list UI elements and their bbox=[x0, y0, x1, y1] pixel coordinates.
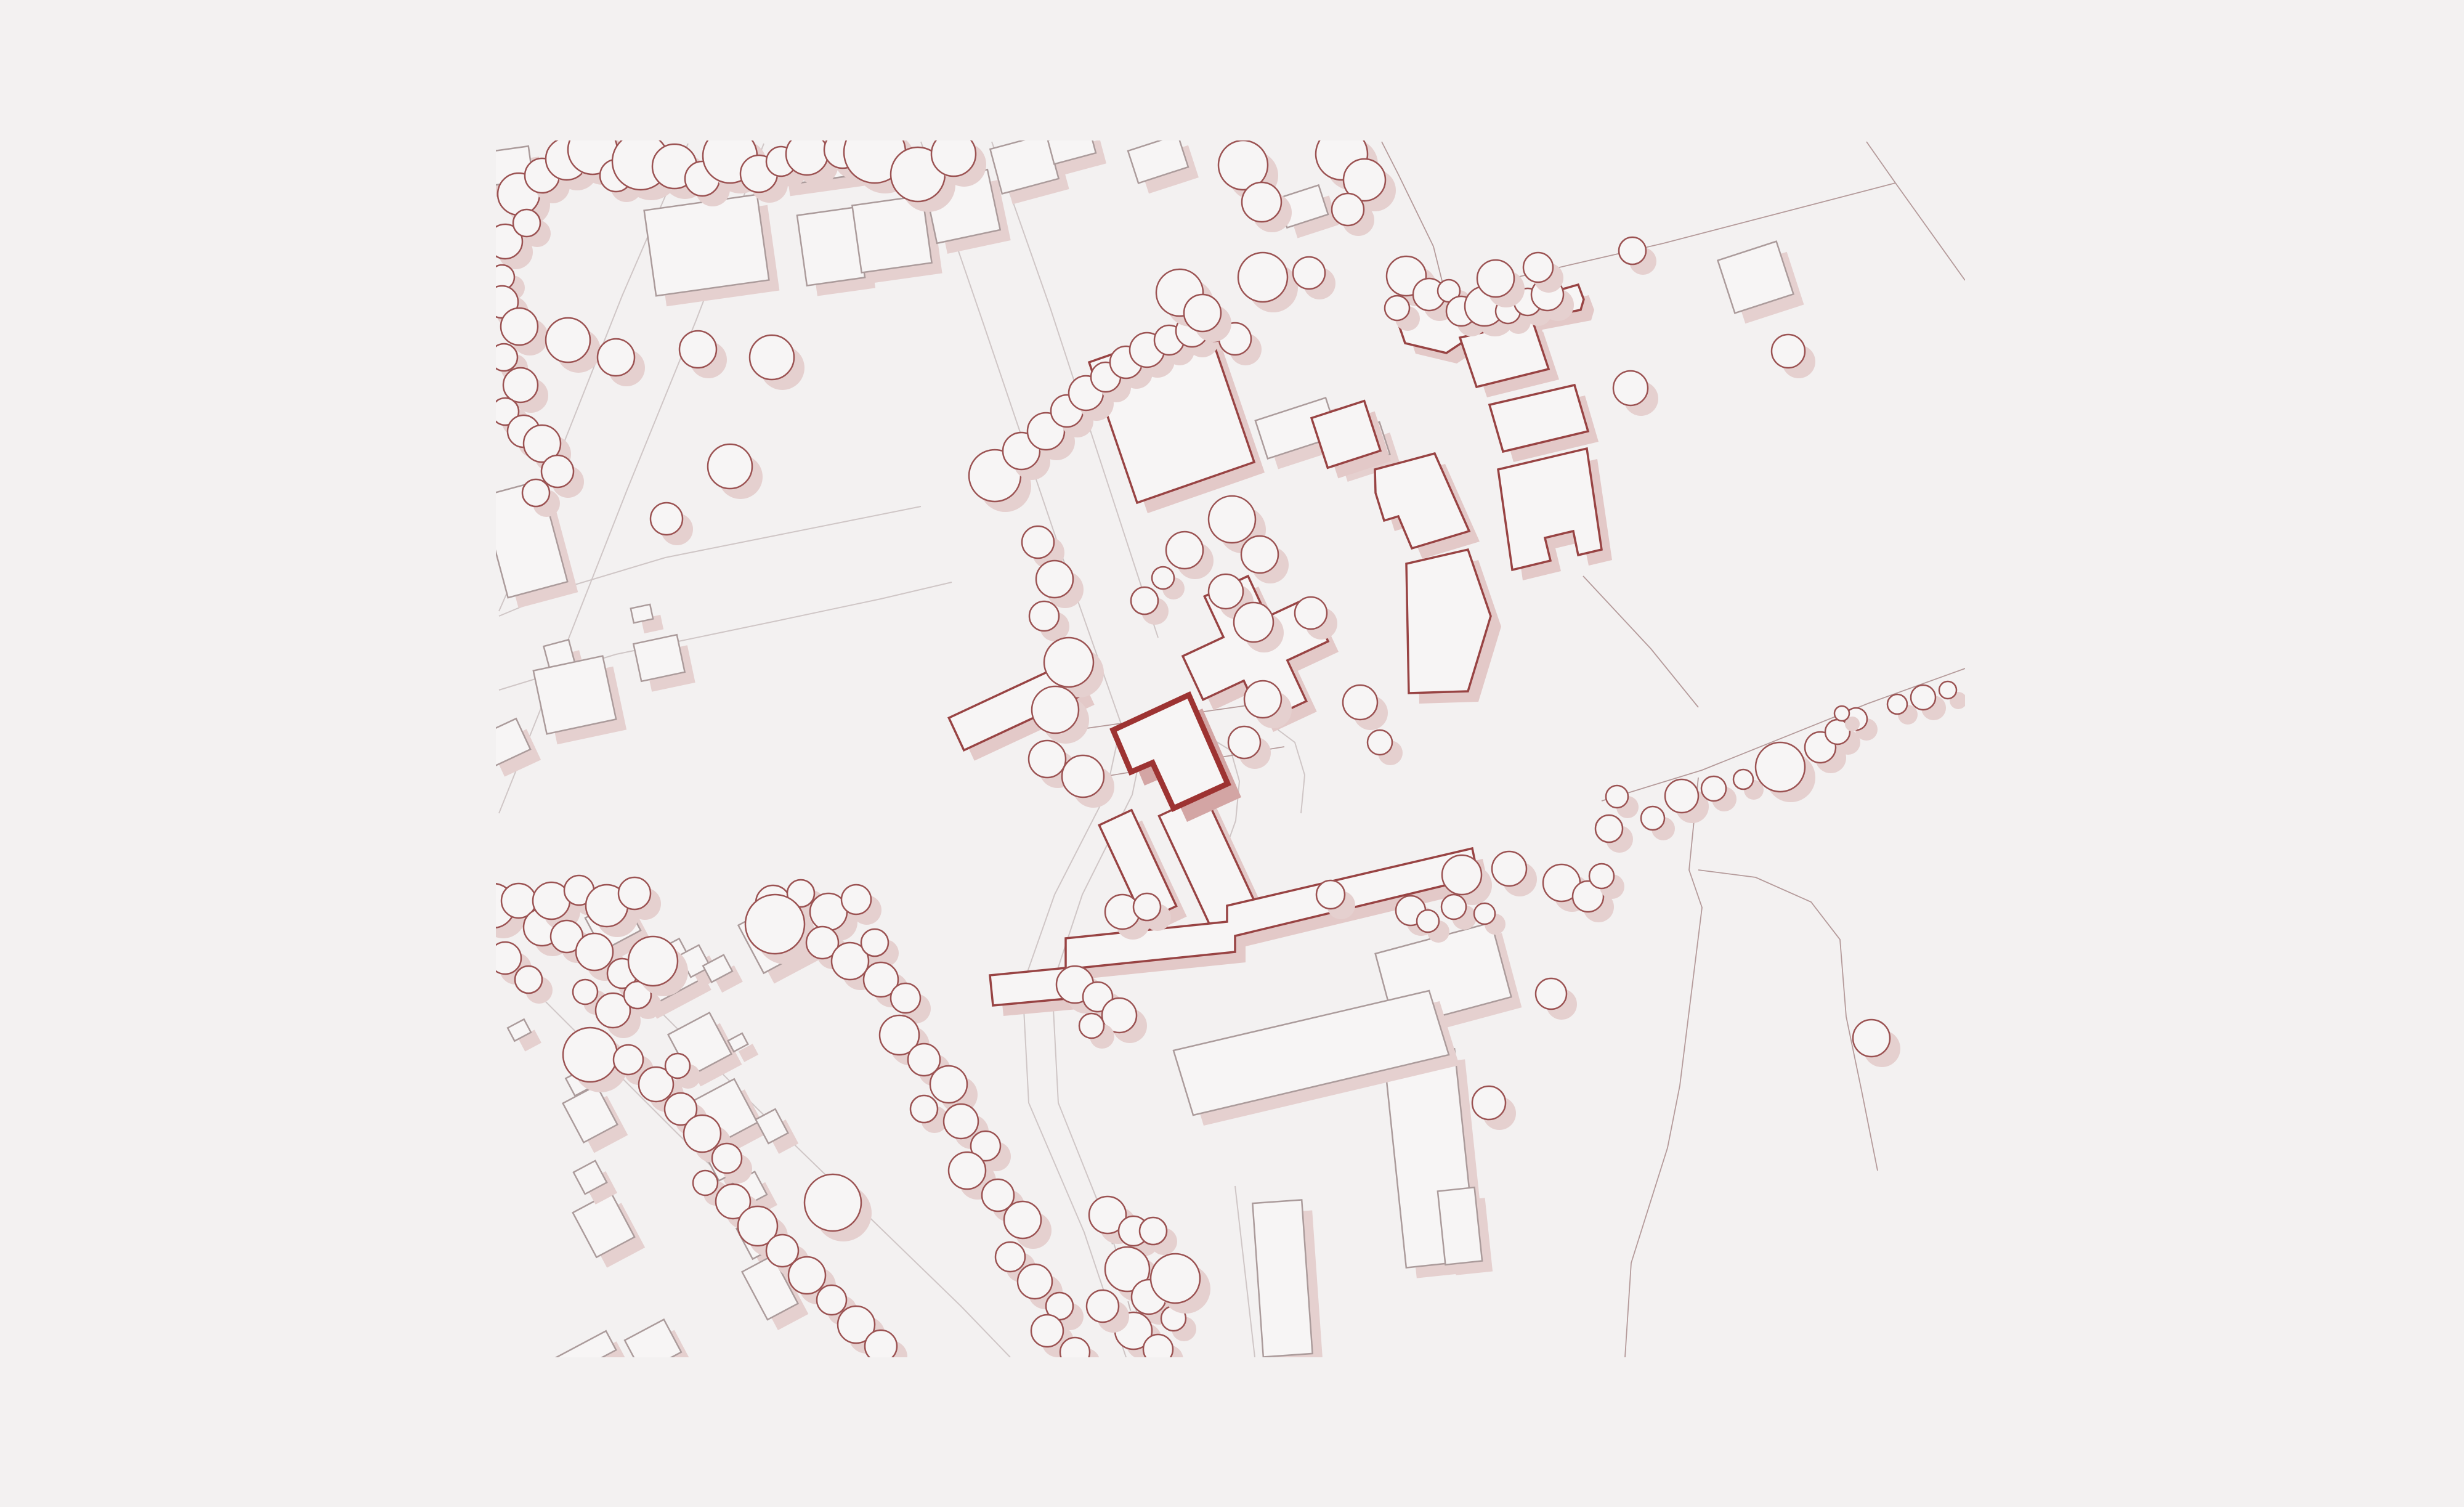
context-building bbox=[533, 656, 616, 734]
tree bbox=[598, 339, 634, 376]
tree bbox=[750, 335, 794, 380]
tree bbox=[1477, 260, 1514, 297]
tree bbox=[1295, 597, 1327, 629]
tree bbox=[501, 308, 538, 345]
tree bbox=[1492, 851, 1526, 886]
site-plan-page bbox=[0, 0, 2464, 1507]
tree bbox=[1166, 532, 1203, 569]
tree bbox=[1772, 335, 1805, 368]
tree bbox=[930, 1066, 967, 1103]
tree bbox=[618, 877, 650, 909]
tree bbox=[1641, 806, 1664, 830]
tree bbox=[1238, 253, 1287, 302]
tree bbox=[628, 936, 678, 986]
tree bbox=[1417, 910, 1439, 932]
tree bbox=[522, 479, 549, 506]
tree bbox=[1018, 1264, 1052, 1299]
tree bbox=[745, 895, 804, 954]
tree bbox=[1242, 182, 1281, 222]
tree bbox=[515, 966, 542, 993]
tree bbox=[708, 444, 752, 489]
tree bbox=[1701, 776, 1726, 801]
tree bbox=[693, 1171, 718, 1195]
context-building bbox=[1252, 1200, 1312, 1357]
tree bbox=[1853, 1020, 1890, 1057]
tree bbox=[1733, 770, 1753, 789]
tree bbox=[1087, 1290, 1119, 1322]
tree bbox=[679, 331, 716, 368]
tree bbox=[1140, 1217, 1167, 1245]
tree bbox=[817, 1285, 846, 1315]
tree bbox=[650, 503, 683, 535]
tree bbox=[1079, 1013, 1104, 1038]
tree bbox=[1228, 726, 1260, 758]
tree bbox=[788, 1257, 825, 1294]
context-building bbox=[631, 604, 653, 623]
tree bbox=[995, 1242, 1025, 1272]
tree bbox=[684, 1115, 721, 1152]
tree bbox=[1613, 371, 1648, 405]
tree bbox=[1184, 294, 1221, 331]
tree bbox=[1595, 815, 1623, 842]
tree bbox=[1029, 601, 1059, 631]
tree bbox=[1293, 257, 1325, 289]
tree bbox=[1031, 1315, 1063, 1347]
tree bbox=[541, 455, 573, 487]
tree bbox=[891, 983, 920, 1013]
tree bbox=[1589, 864, 1614, 888]
tree bbox=[546, 318, 590, 362]
tree bbox=[1343, 685, 1377, 720]
tree bbox=[944, 1104, 978, 1139]
tree bbox=[861, 929, 888, 956]
tree bbox=[1234, 603, 1273, 642]
tree bbox=[665, 1054, 690, 1078]
tree bbox=[1133, 893, 1161, 920]
tree bbox=[573, 980, 598, 1004]
tree bbox=[1029, 741, 1066, 778]
tree bbox=[1911, 685, 1935, 710]
tree bbox=[1474, 903, 1495, 924]
tree bbox=[1004, 1201, 1041, 1238]
tree bbox=[1151, 1254, 1200, 1303]
tree bbox=[1332, 193, 1364, 225]
tree bbox=[910, 1095, 938, 1123]
tree bbox=[1523, 253, 1553, 282]
tree bbox=[614, 1045, 643, 1074]
tree bbox=[1316, 880, 1345, 909]
tree bbox=[1606, 786, 1628, 808]
tree bbox=[513, 209, 540, 237]
tree bbox=[1036, 561, 1073, 598]
tree bbox=[563, 1028, 617, 1082]
tree bbox=[1131, 587, 1158, 614]
tree bbox=[949, 1152, 986, 1189]
tree bbox=[1442, 855, 1481, 895]
tree bbox=[804, 1174, 861, 1231]
tree bbox=[1209, 574, 1243, 609]
tree bbox=[1244, 681, 1281, 718]
tree bbox=[1044, 638, 1093, 687]
tree bbox=[1152, 567, 1174, 589]
context-building bbox=[633, 635, 684, 681]
tree bbox=[1209, 496, 1255, 543]
context-building bbox=[1438, 1187, 1482, 1265]
tree bbox=[712, 1143, 742, 1173]
tree bbox=[1062, 755, 1104, 797]
tree bbox=[1887, 694, 1907, 714]
site-plan-map bbox=[0, 0, 2464, 1507]
tree bbox=[1756, 742, 1805, 792]
tree bbox=[1441, 895, 1466, 919]
tree bbox=[576, 933, 613, 970]
tree bbox=[1665, 779, 1698, 813]
tree bbox=[1368, 730, 1392, 755]
tree bbox=[1022, 526, 1054, 558]
tree bbox=[1472, 1086, 1506, 1119]
tree bbox=[1536, 978, 1566, 1009]
tree bbox=[1385, 296, 1409, 320]
tree bbox=[1834, 706, 1849, 721]
tree bbox=[1241, 536, 1278, 573]
context-building bbox=[644, 195, 769, 296]
tree bbox=[1619, 237, 1646, 264]
tree bbox=[1939, 681, 1956, 699]
tree bbox=[503, 368, 538, 402]
tree bbox=[841, 885, 871, 914]
tree bbox=[1032, 686, 1079, 733]
